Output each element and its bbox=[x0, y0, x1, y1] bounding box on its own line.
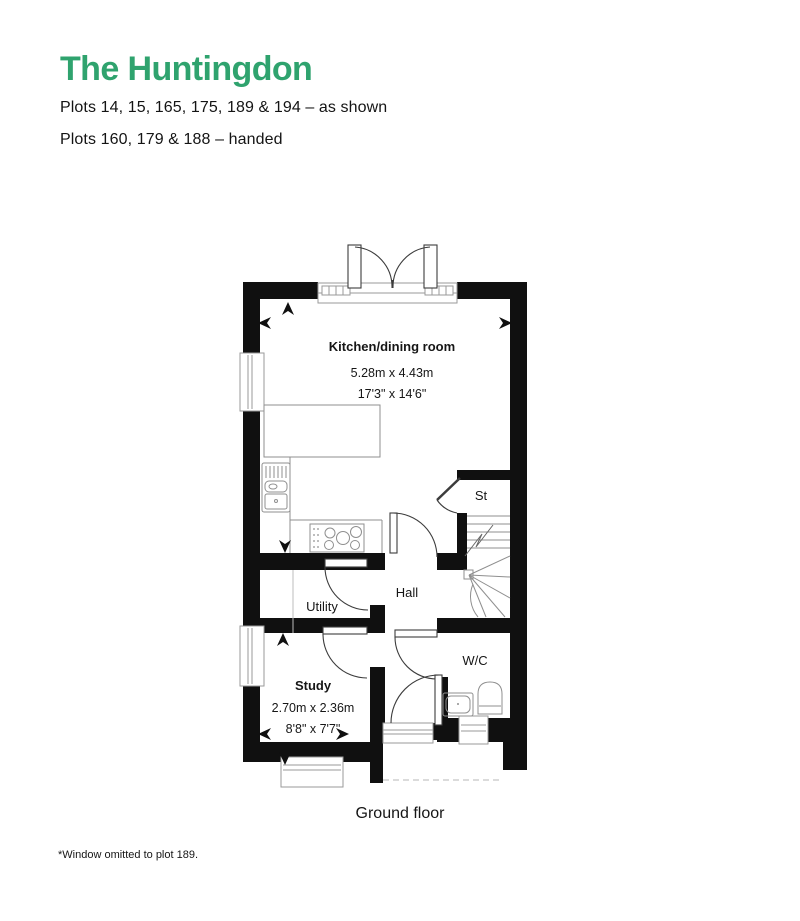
dim-arrow-up-study bbox=[277, 633, 289, 646]
utility-door-leaf bbox=[325, 559, 367, 567]
front-door-swing bbox=[391, 675, 439, 723]
floorplan: Kitchen/dining room 5.28m x 4.43m 17'3" … bbox=[230, 230, 540, 800]
wall-hall-vertical-1 bbox=[370, 605, 385, 633]
stair-winders bbox=[469, 556, 510, 617]
footnote-text: *Window omitted to plot 189. bbox=[58, 849, 198, 861]
sink-bowl bbox=[265, 494, 287, 509]
kitchen-fixtures bbox=[262, 405, 382, 553]
front-door-leaf bbox=[435, 675, 442, 725]
store-door-leaf bbox=[437, 478, 460, 500]
kitchen-unit bbox=[264, 405, 380, 457]
study-dim-metric: 2.70m x 2.36m bbox=[272, 701, 355, 715]
wc-fixtures bbox=[443, 682, 502, 716]
page-title: The Huntingdon bbox=[60, 50, 312, 89]
worktop-edge bbox=[290, 457, 382, 553]
sink-drainer bbox=[266, 466, 286, 478]
hob-controls bbox=[313, 528, 319, 548]
floor-caption: Ground floor bbox=[245, 805, 555, 823]
study-dim-imperial: 8'8" x 7'7" bbox=[286, 722, 341, 736]
study-door-leaf bbox=[323, 627, 367, 634]
wall-wc-top bbox=[437, 618, 510, 633]
wall-hall-vertical-2 bbox=[370, 667, 385, 723]
store-door-swing bbox=[437, 500, 457, 513]
study-door-swing bbox=[323, 634, 367, 678]
study-bay-window bbox=[281, 757, 343, 787]
kitchen-dim-imperial: 17'3" x 14'6" bbox=[358, 387, 427, 401]
wall-frontdoor-left bbox=[370, 723, 383, 740]
kitchen-dim-metric: 5.28m x 4.43m bbox=[351, 366, 434, 380]
sink-tap bbox=[265, 481, 287, 492]
store-label: St bbox=[475, 488, 488, 503]
wc-window bbox=[459, 716, 488, 744]
wall-left-a bbox=[243, 282, 260, 355]
hall-label: Hall bbox=[396, 585, 419, 600]
french-door-leaf-left bbox=[348, 245, 361, 288]
brochure-page: { "header": { "title": "The Huntingdon",… bbox=[0, 0, 800, 921]
wall-right bbox=[510, 282, 527, 718]
hob-burners bbox=[325, 527, 362, 550]
french-door-leaf-right bbox=[424, 245, 437, 288]
wc-label: W/C bbox=[462, 653, 487, 668]
wc-door-leaf bbox=[395, 630, 437, 637]
wall-left-b bbox=[243, 409, 260, 628]
stairs bbox=[464, 516, 510, 617]
utility-label: Utility bbox=[306, 599, 338, 614]
plots-as-shown-text: Plots 14, 15, 165, 175, 189 & 194 – as s… bbox=[60, 99, 387, 117]
floorplan-drawing: Kitchen/dining room 5.28m x 4.43m 17'3" … bbox=[230, 230, 540, 800]
kitchen-door-swing bbox=[393, 513, 437, 557]
doors bbox=[323, 245, 460, 725]
dim-arrow-up-kitchen bbox=[282, 302, 294, 315]
front-door-threshold bbox=[383, 723, 433, 743]
plots-handed-text: Plots 160, 179 & 188 – handed bbox=[60, 131, 283, 149]
dim-arrow-down-kitchen bbox=[279, 540, 291, 553]
study-label: Study bbox=[295, 678, 332, 693]
kitchen-door-leaf bbox=[390, 513, 397, 553]
wall-wc-bottom-right bbox=[486, 718, 510, 742]
wall-store-left bbox=[457, 513, 467, 557]
kitchen-label: Kitchen/dining room bbox=[329, 339, 455, 354]
wall-store-top bbox=[457, 470, 527, 480]
toilet bbox=[478, 682, 502, 714]
wc-door-swing bbox=[395, 637, 437, 679]
stair-treads bbox=[467, 516, 510, 548]
